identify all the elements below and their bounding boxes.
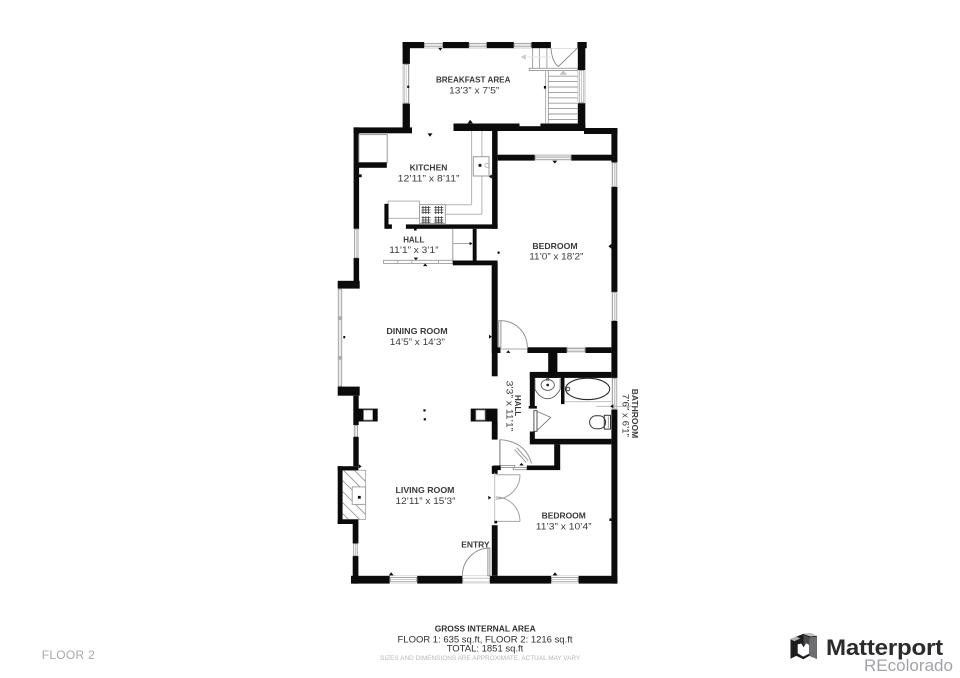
svg-text:HALL: HALL — [403, 235, 424, 245]
svg-text:13’3” x 7’5”: 13’3” x 7’5” — [449, 85, 499, 96]
svg-text:14’5” x 14’3”: 14’5” x 14’3” — [390, 337, 445, 348]
svg-text:11’0” x 18’2”: 11’0” x 18’2” — [529, 252, 583, 263]
svg-text:12’11” x 15’3”: 12’11” x 15’3” — [396, 496, 456, 507]
svg-text:ENTRY: ENTRY — [461, 539, 490, 549]
svg-text:REcolorado: REcolorado — [864, 656, 953, 675]
svg-text:7’6” x 6’1”: 7’6” x 6’1” — [620, 394, 631, 437]
svg-text:11’1” x 3’1”: 11’1” x 3’1” — [389, 245, 438, 256]
svg-text:FLOOR 2: FLOOR 2 — [42, 648, 95, 662]
svg-text:BREAKFAST AREA: BREAKFAST AREA — [436, 75, 511, 85]
svg-text:SIZES AND DIMENSIONS ARE APPRO: SIZES AND DIMENSIONS ARE APPROXIMATE, AC… — [380, 655, 581, 662]
svg-text:TOTAL: 1851 sq.ft: TOTAL: 1851 sq.ft — [447, 644, 524, 655]
svg-text:BEDROOM: BEDROOM — [542, 511, 586, 521]
svg-text:BEDROOM: BEDROOM — [532, 241, 577, 251]
svg-text:GROSS INTERNAL AREA: GROSS INTERNAL AREA — [435, 623, 536, 633]
svg-text:DINING ROOM: DINING ROOM — [386, 326, 447, 336]
svg-text:12’11” x 8’11”: 12’11” x 8’11” — [398, 174, 460, 185]
svg-text:KITCHEN: KITCHEN — [410, 162, 448, 172]
svg-text:11’3” x 10’4”: 11’3” x 10’4” — [536, 521, 592, 532]
svg-text:3’3” x 11’1”: 3’3” x 11’1” — [503, 381, 514, 432]
svg-text:LIVING ROOM: LIVING ROOM — [396, 485, 455, 495]
